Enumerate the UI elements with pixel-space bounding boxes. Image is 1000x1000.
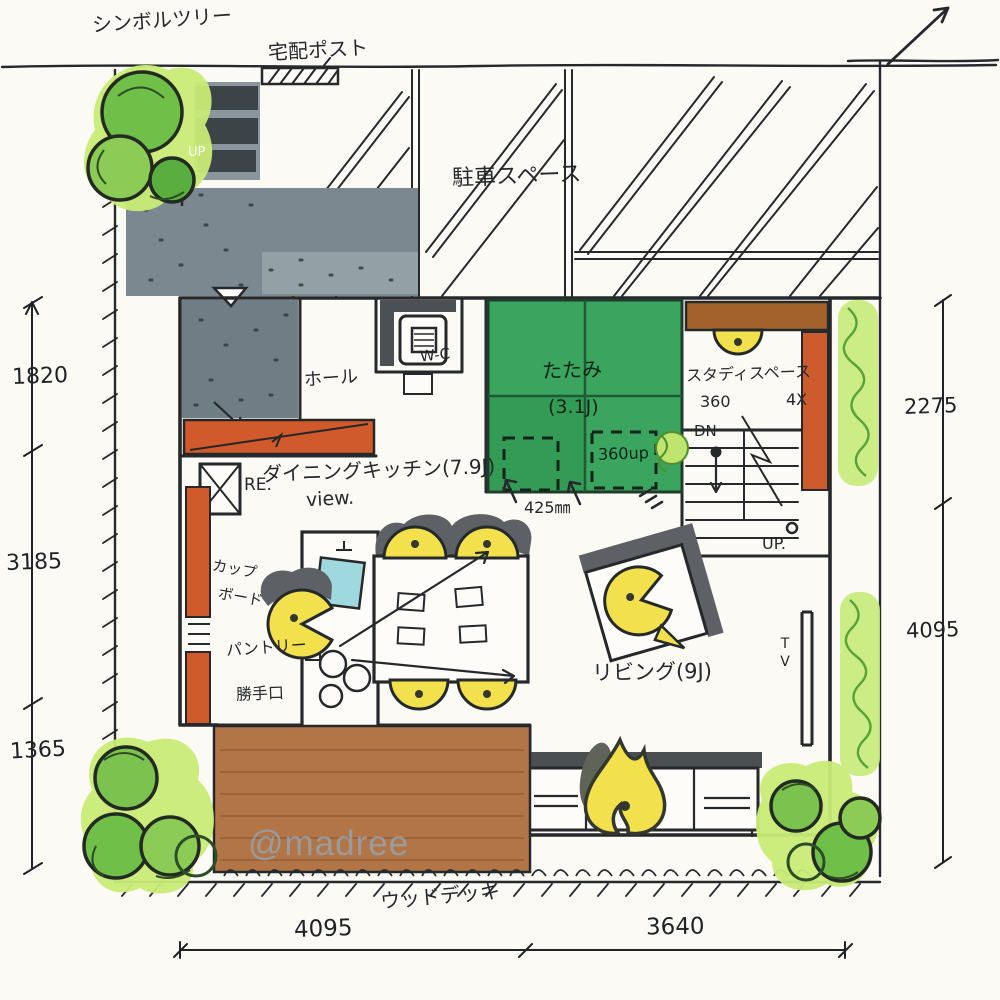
tatami-size-label: (3.1J) bbox=[548, 398, 599, 417]
study-desk bbox=[686, 302, 828, 330]
stairs bbox=[686, 432, 798, 538]
stairs-dn-label: DN bbox=[694, 424, 717, 439]
tatami-name-label: たたみ bbox=[542, 359, 603, 381]
stair-newel-bottom bbox=[787, 523, 797, 533]
tv-board bbox=[802, 612, 812, 745]
pantry-unit bbox=[186, 652, 210, 724]
chair-dot-3 bbox=[415, 690, 423, 698]
study-label: スタディスペース bbox=[686, 364, 811, 384]
wc-label: W-C bbox=[419, 346, 451, 364]
stair-treads bbox=[686, 432, 798, 538]
chair-dot-1 bbox=[411, 540, 419, 548]
tree-canopy bbox=[95, 747, 157, 809]
chair-dot-2 bbox=[483, 540, 491, 548]
view-label: view. bbox=[306, 489, 355, 510]
tree-cluster-bottom-right bbox=[756, 761, 880, 891]
dim-bottom-4095: 4095 bbox=[294, 917, 353, 942]
tree-canopy bbox=[150, 158, 194, 202]
stair-direction-line bbox=[711, 457, 721, 492]
cupboard-unit bbox=[186, 487, 210, 617]
dim-line-right bbox=[935, 295, 951, 868]
shelf-lines bbox=[188, 624, 210, 644]
study-shelf-wall bbox=[802, 332, 828, 490]
watermark: @madree bbox=[248, 824, 409, 864]
study-height-label: 360 bbox=[700, 394, 731, 410]
floor-plan-sketch: シンボルツリー 宅配ポスト 駐車スペース UP ホール W-C たたみ (3.1… bbox=[0, 0, 1000, 1000]
hedge-right-upper bbox=[838, 300, 878, 486]
study-size-label: 4X bbox=[786, 392, 807, 408]
tree-cluster-top-left bbox=[84, 65, 212, 211]
plant-blob bbox=[656, 432, 688, 464]
stairs-up-label: UP. bbox=[762, 536, 786, 552]
parking-label: 駐車スペース bbox=[452, 164, 582, 191]
hall-label: ホール bbox=[303, 368, 358, 390]
washbasin bbox=[404, 374, 432, 394]
dim-right-2275: 2275 bbox=[904, 395, 958, 418]
dim-right-4095: 4095 bbox=[906, 619, 960, 642]
chair-dot-4 bbox=[483, 690, 491, 698]
study-stool-dot bbox=[734, 338, 742, 346]
kitchen-stool-dot bbox=[290, 614, 298, 622]
tatami-raised-label: 360up bbox=[598, 445, 649, 463]
sofa bbox=[579, 523, 725, 669]
tree-canopy bbox=[84, 814, 148, 878]
dim-line-bottom bbox=[174, 942, 852, 958]
entrance-up-label: UP bbox=[188, 146, 205, 159]
hedge-right-lower bbox=[840, 592, 880, 776]
back-door-label: 勝手口 bbox=[236, 685, 285, 703]
tree-canopy bbox=[840, 798, 880, 838]
approach-slab-light bbox=[262, 252, 418, 294]
dim-left-1820: 1820 bbox=[12, 365, 69, 389]
dim-bottom-3640: 3640 bbox=[646, 915, 705, 939]
dim-left-3185: 3185 bbox=[6, 551, 63, 575]
stair-newel-top bbox=[711, 447, 721, 457]
step-height-label: 425㎜ bbox=[524, 500, 571, 516]
tree-cluster-bottom-left bbox=[81, 738, 216, 894]
plan-drawing bbox=[0, 0, 1000, 1000]
tv-label: TV bbox=[778, 636, 792, 672]
dim-left-1365: 1365 bbox=[9, 739, 66, 764]
delivery-post-label: 宅配ポスト bbox=[268, 37, 369, 62]
north-arrow-icon bbox=[888, 8, 948, 64]
tree-canopy bbox=[141, 817, 199, 875]
living-label: リビング(9J) bbox=[592, 661, 712, 684]
flame-dot bbox=[620, 801, 630, 811]
